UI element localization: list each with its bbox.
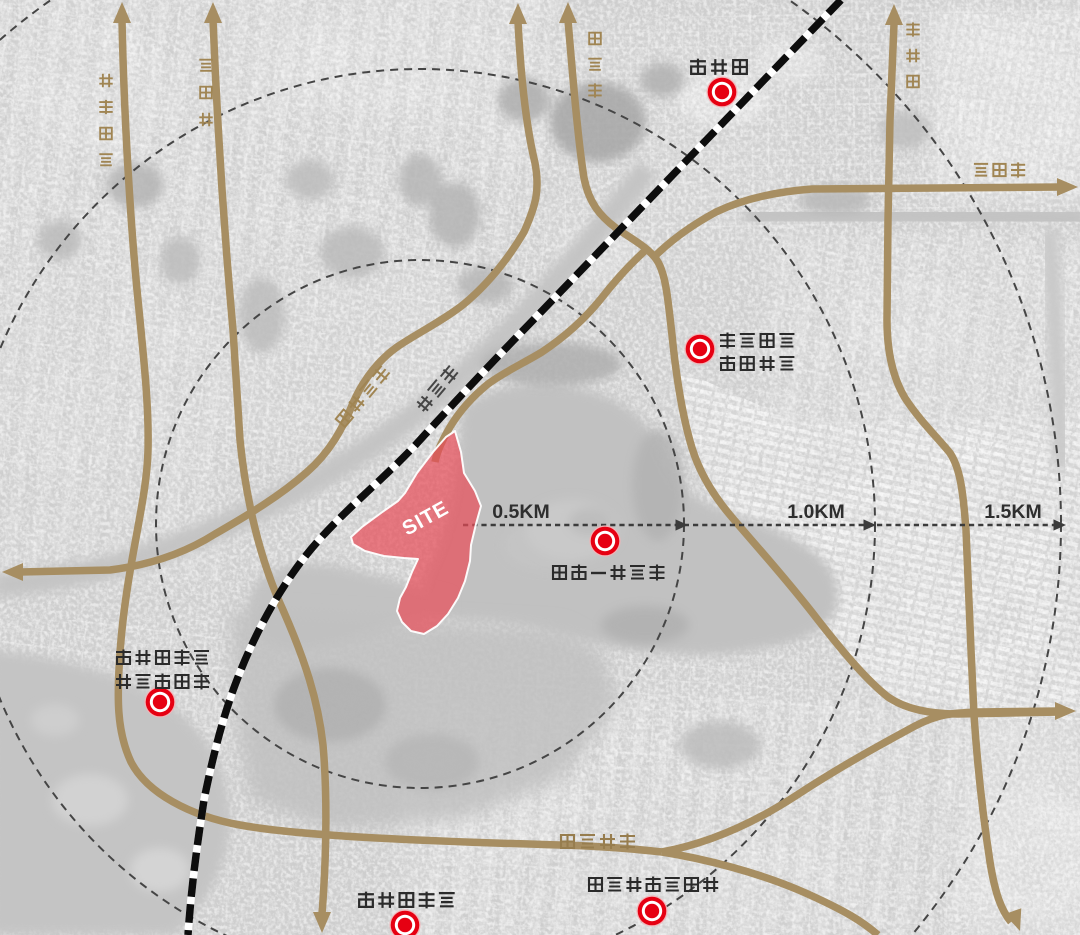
svg-text:1.5KM: 1.5KM	[984, 501, 1041, 523]
svg-text:0.5KM: 0.5KM	[492, 501, 549, 523]
svg-text:1.0KM: 1.0KM	[787, 501, 844, 523]
